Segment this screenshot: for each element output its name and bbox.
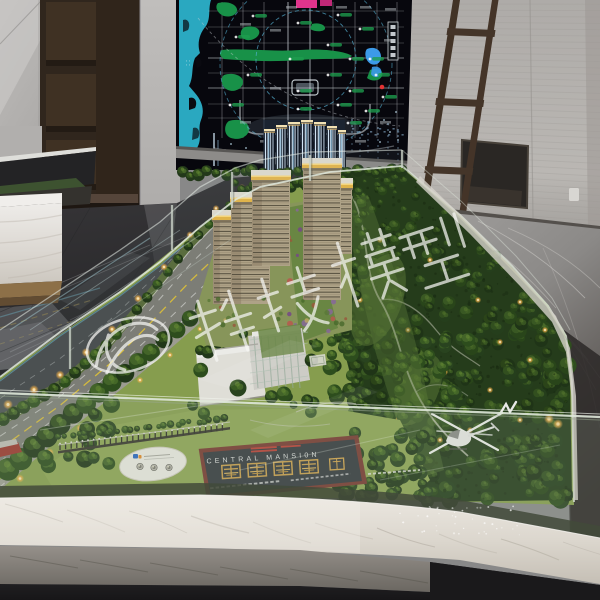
svg-text:::: :: xyxy=(184,60,191,68)
